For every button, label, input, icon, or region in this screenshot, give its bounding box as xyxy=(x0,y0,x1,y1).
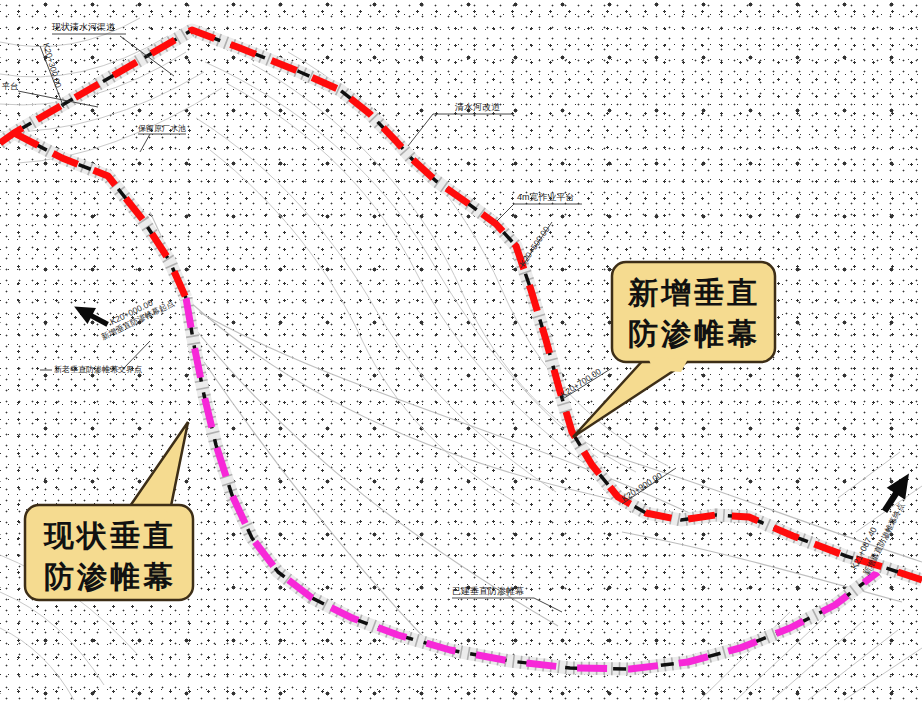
callout-existing-tail xyxy=(128,422,188,511)
river-diversion-label: 清水河改道 xyxy=(454,102,500,112)
callout-existing-line1: 现状垂直 xyxy=(43,519,176,552)
callout-new-line2: 防渗帷幕 xyxy=(628,317,760,350)
callout-new-curtain: 新增垂直 防渗帷幕 xyxy=(573,262,775,437)
keep-pond-label: 保留原厂水池 xyxy=(138,124,186,133)
callout-existing-curtain: 现状垂直 防渗帷幕 xyxy=(25,422,193,600)
callout-new-line1: 新增垂直 xyxy=(627,276,760,309)
existing-channel-label: 现状清水河渠道 xyxy=(51,22,115,32)
start-direction-arrow-icon xyxy=(70,299,112,333)
platform-edge-label: 平台 xyxy=(2,82,18,91)
built-curtain-label: 已建垂直防渗帷幕 xyxy=(452,586,524,596)
station-k20-700-label: K20+700.00 xyxy=(559,366,603,400)
new-curtain-line-branch xyxy=(14,133,186,298)
site-plan-drawing: 现状清水河渠道 K20+300.00 清水河改道 4m宽作业平台 K20+500… xyxy=(0,0,922,703)
work-platform-label: 4m宽作业平台 xyxy=(517,192,575,202)
callout-existing-line2: 防渗帷幕 xyxy=(44,560,176,593)
start-point-group: K20+000.00 新增垂直防渗帷幕起点 xyxy=(70,297,176,341)
site-plan-svg: 现状清水河渠道 K20+300.00 清水河改道 4m宽作业平台 K20+500… xyxy=(0,0,922,703)
station-k20-300-label: K20+300.00 xyxy=(41,42,63,89)
junction-point-label: 新老垂直防渗帷幕交界点 xyxy=(54,365,142,374)
